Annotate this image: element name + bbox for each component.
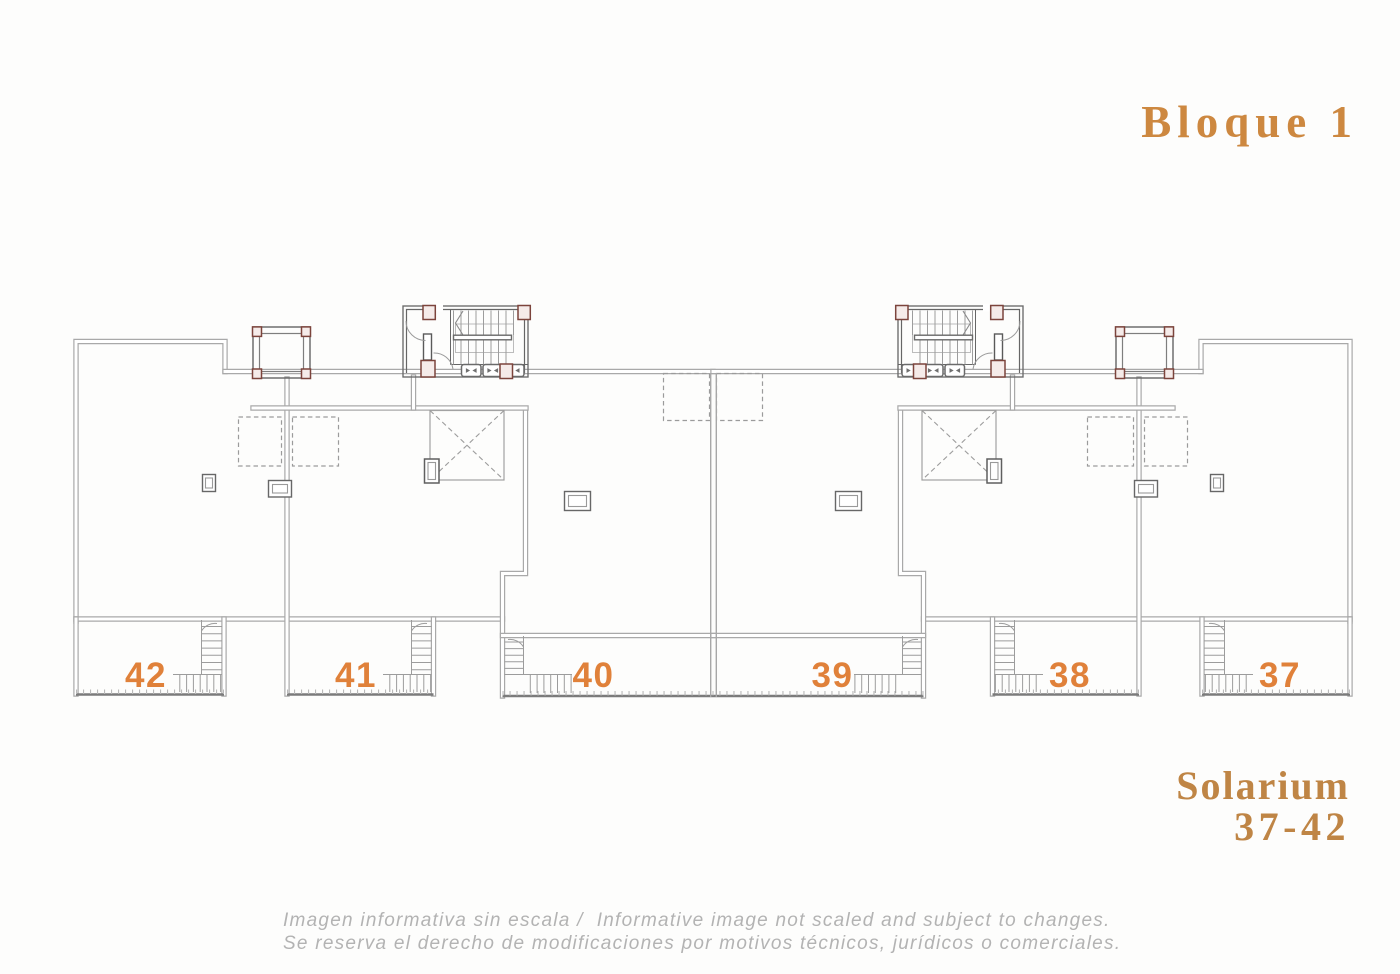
svg-text:41: 41 xyxy=(335,656,377,695)
svg-text:42: 42 xyxy=(125,656,167,695)
svg-text:37: 37 xyxy=(1259,656,1301,695)
svg-text:38: 38 xyxy=(1049,656,1091,695)
svg-text:39: 39 xyxy=(812,656,854,695)
svg-text:40: 40 xyxy=(573,656,615,695)
